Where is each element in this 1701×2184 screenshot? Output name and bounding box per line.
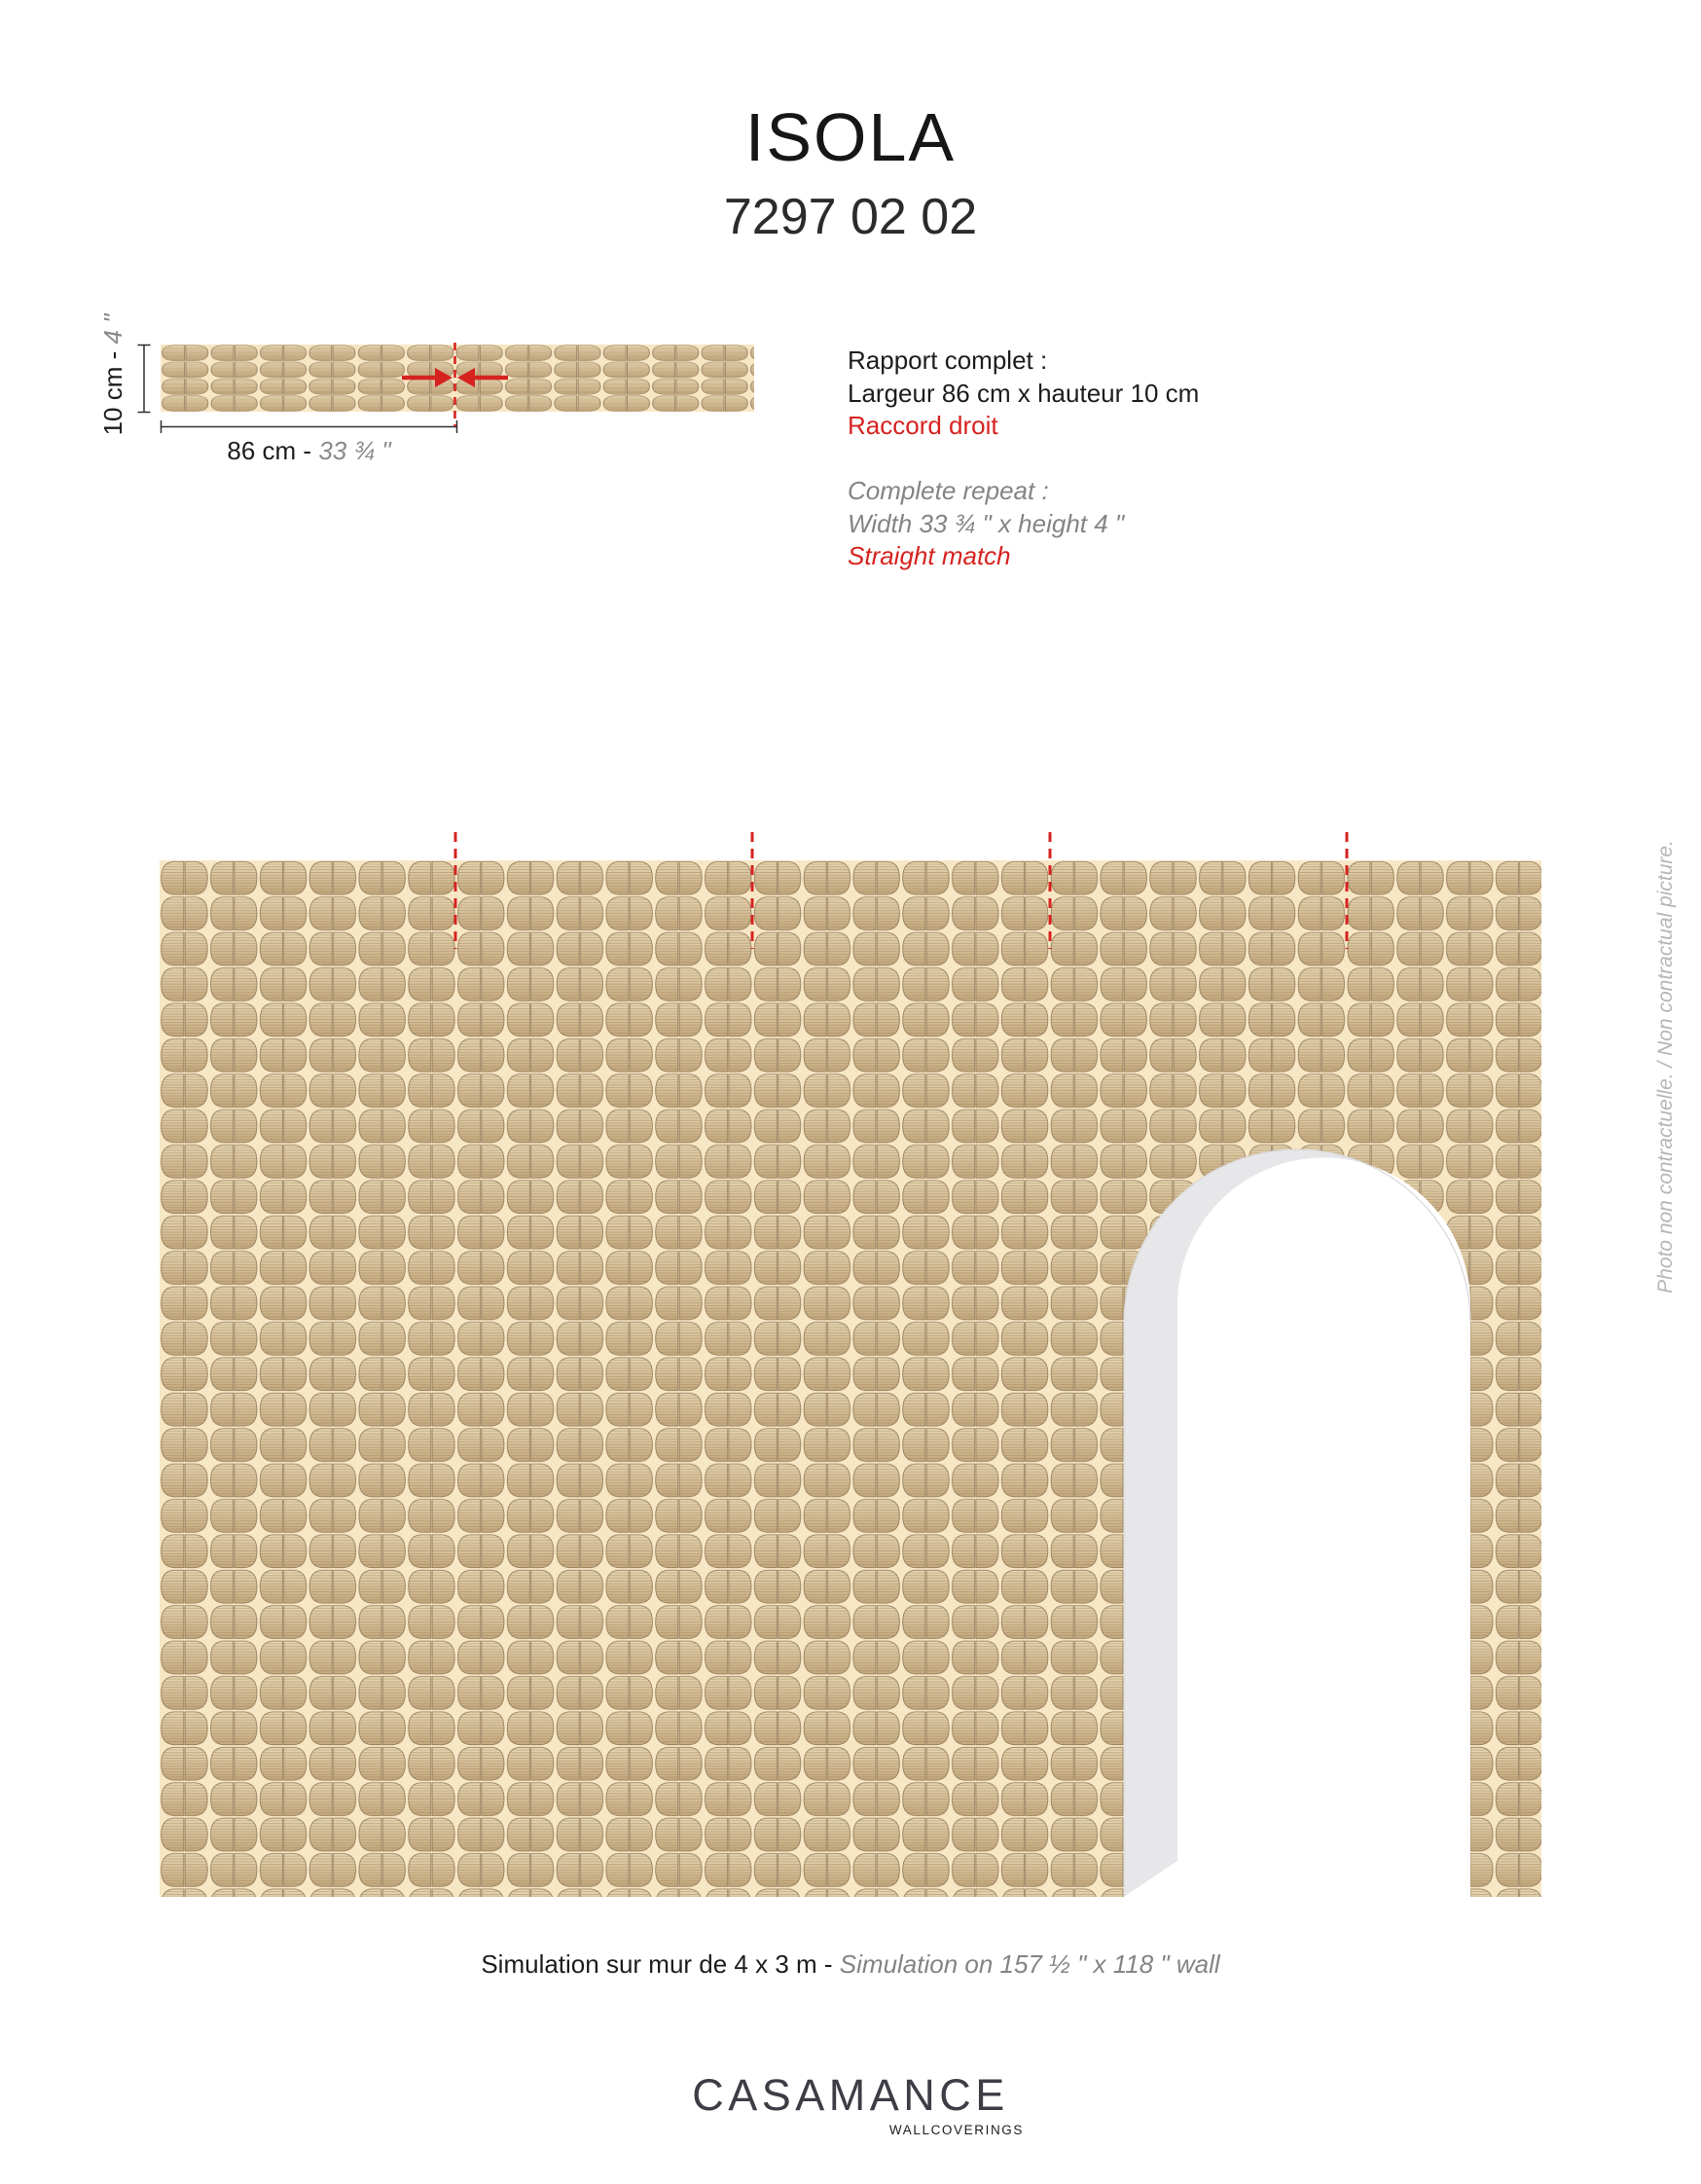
spec-en-match: Straight match bbox=[848, 540, 1124, 573]
caption-french: Simulation sur mur de 4 x 3 m - bbox=[481, 1949, 839, 1979]
width-label-metric: 86 cm - bbox=[227, 436, 318, 465]
height-label-imperial: 4 " bbox=[98, 314, 127, 345]
height-label-metric: 10 cm - bbox=[98, 345, 127, 436]
page-title: ISOLA bbox=[0, 103, 1701, 171]
spec-block-french: Rapport complet : Largeur 86 cm x hauteu… bbox=[848, 345, 1199, 443]
width-dimension-line bbox=[162, 420, 457, 433]
height-dimension-label: 10 cm - 4 " bbox=[100, 297, 129, 453]
spec-block-english: Complete repeat : Width 33 ¾ " x height … bbox=[848, 475, 1124, 573]
repeat-strip-diagram bbox=[138, 343, 755, 433]
wall-simulation bbox=[160, 832, 1541, 1897]
brand-logo: CASAMANCE bbox=[0, 2073, 1701, 2117]
brand-tagline: WALLCOVERINGS bbox=[584, 2124, 1024, 2137]
non-contractual-note: Photo non contractuelle. / Non contractu… bbox=[1652, 794, 1680, 1339]
repeat-strip-swatch bbox=[161, 345, 754, 412]
arch-doorway bbox=[1124, 1149, 1470, 1897]
simulation-caption: Simulation sur mur de 4 x 3 m - Simulati… bbox=[0, 1948, 1701, 1982]
spec-en-dimensions: Width 33 ¾ " x height 4 " bbox=[848, 508, 1124, 541]
spec-fr-dimensions: Largeur 86 cm x hauteur 10 cm bbox=[848, 378, 1199, 411]
caption-english: Simulation on 157 ½ " x 118 " wall bbox=[840, 1949, 1220, 1979]
artwork-layer bbox=[0, 0, 1701, 2184]
spec-en-heading: Complete repeat : bbox=[848, 475, 1124, 508]
width-label-imperial: 33 ¾ " bbox=[318, 436, 390, 465]
spec-fr-heading: Rapport complet : bbox=[848, 345, 1199, 378]
spec-fr-match: Raccord droit bbox=[848, 410, 1199, 443]
wallcovering-spec-sheet: ISOLA 7297 02 02 10 cm - 4 " 86 cm - 33 … bbox=[0, 0, 1701, 2184]
product-reference: 7297 02 02 bbox=[0, 192, 1701, 242]
width-dimension-label: 86 cm - 33 ¾ " bbox=[161, 438, 457, 463]
height-dimension-line bbox=[138, 346, 151, 413]
